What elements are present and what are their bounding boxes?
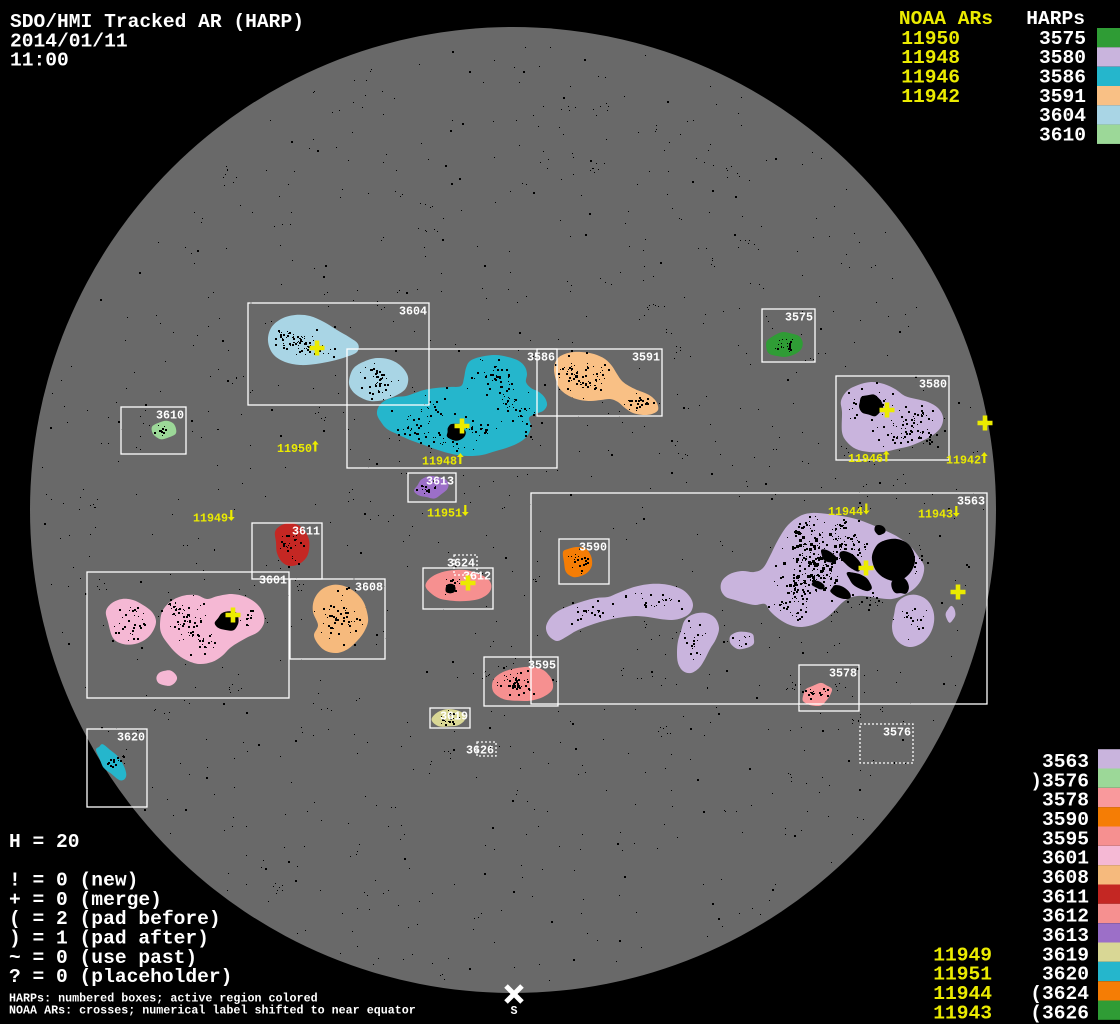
svg-text:3610: 3610 (156, 409, 184, 423)
svg-text:3576: 3576 (883, 726, 911, 740)
svg-text:3611: 3611 (292, 525, 320, 539)
svg-text:3563: 3563 (957, 495, 985, 509)
svg-text:3613: 3613 (426, 475, 454, 489)
svg-text:3604: 3604 (399, 305, 427, 319)
svg-text:NOAA ARs: crosses; numerical l: NOAA ARs: crosses; numerical label shift… (9, 1004, 416, 1018)
svg-text:NOAA ARs: NOAA ARs (899, 8, 993, 30)
svg-text:3619: 3619 (440, 710, 468, 724)
svg-text:(3626: (3626 (1030, 1002, 1089, 1024)
svg-text:11949: 11949 (193, 512, 228, 526)
svg-text:11943: 11943 (918, 508, 953, 522)
svg-text:11943: 11943 (933, 1002, 992, 1024)
svg-text:11942: 11942 (901, 86, 960, 108)
svg-text:11951: 11951 (427, 507, 462, 521)
svg-text:11942: 11942 (946, 454, 981, 468)
svg-text:3620: 3620 (117, 731, 145, 745)
svg-text:3610: 3610 (1039, 124, 1086, 146)
svg-text:3601: 3601 (259, 574, 287, 588)
svg-text:11946: 11946 (848, 452, 883, 466)
svg-text:3590: 3590 (579, 541, 607, 555)
svg-text:3626: 3626 (466, 744, 494, 758)
svg-text:3591: 3591 (632, 351, 660, 365)
svg-text:S: S (510, 1004, 517, 1018)
svg-text:11:00: 11:00 (10, 50, 69, 72)
svg-text:HARPs: HARPs (1026, 8, 1085, 30)
svg-text:? = 0 (placeholder): ? = 0 (placeholder) (9, 966, 232, 988)
svg-text:11944: 11944 (828, 505, 863, 519)
svg-text:3580: 3580 (919, 378, 947, 392)
svg-text:3624: 3624 (447, 557, 475, 571)
svg-text:3608: 3608 (355, 581, 383, 595)
svg-text:H = 20: H = 20 (9, 831, 80, 853)
svg-text:3578: 3578 (829, 667, 857, 681)
svg-text:11950: 11950 (277, 442, 312, 456)
svg-text:3595: 3595 (528, 659, 556, 673)
svg-text:3586: 3586 (527, 351, 555, 365)
svg-text:3575: 3575 (785, 311, 813, 325)
svg-text:11948: 11948 (422, 455, 457, 469)
